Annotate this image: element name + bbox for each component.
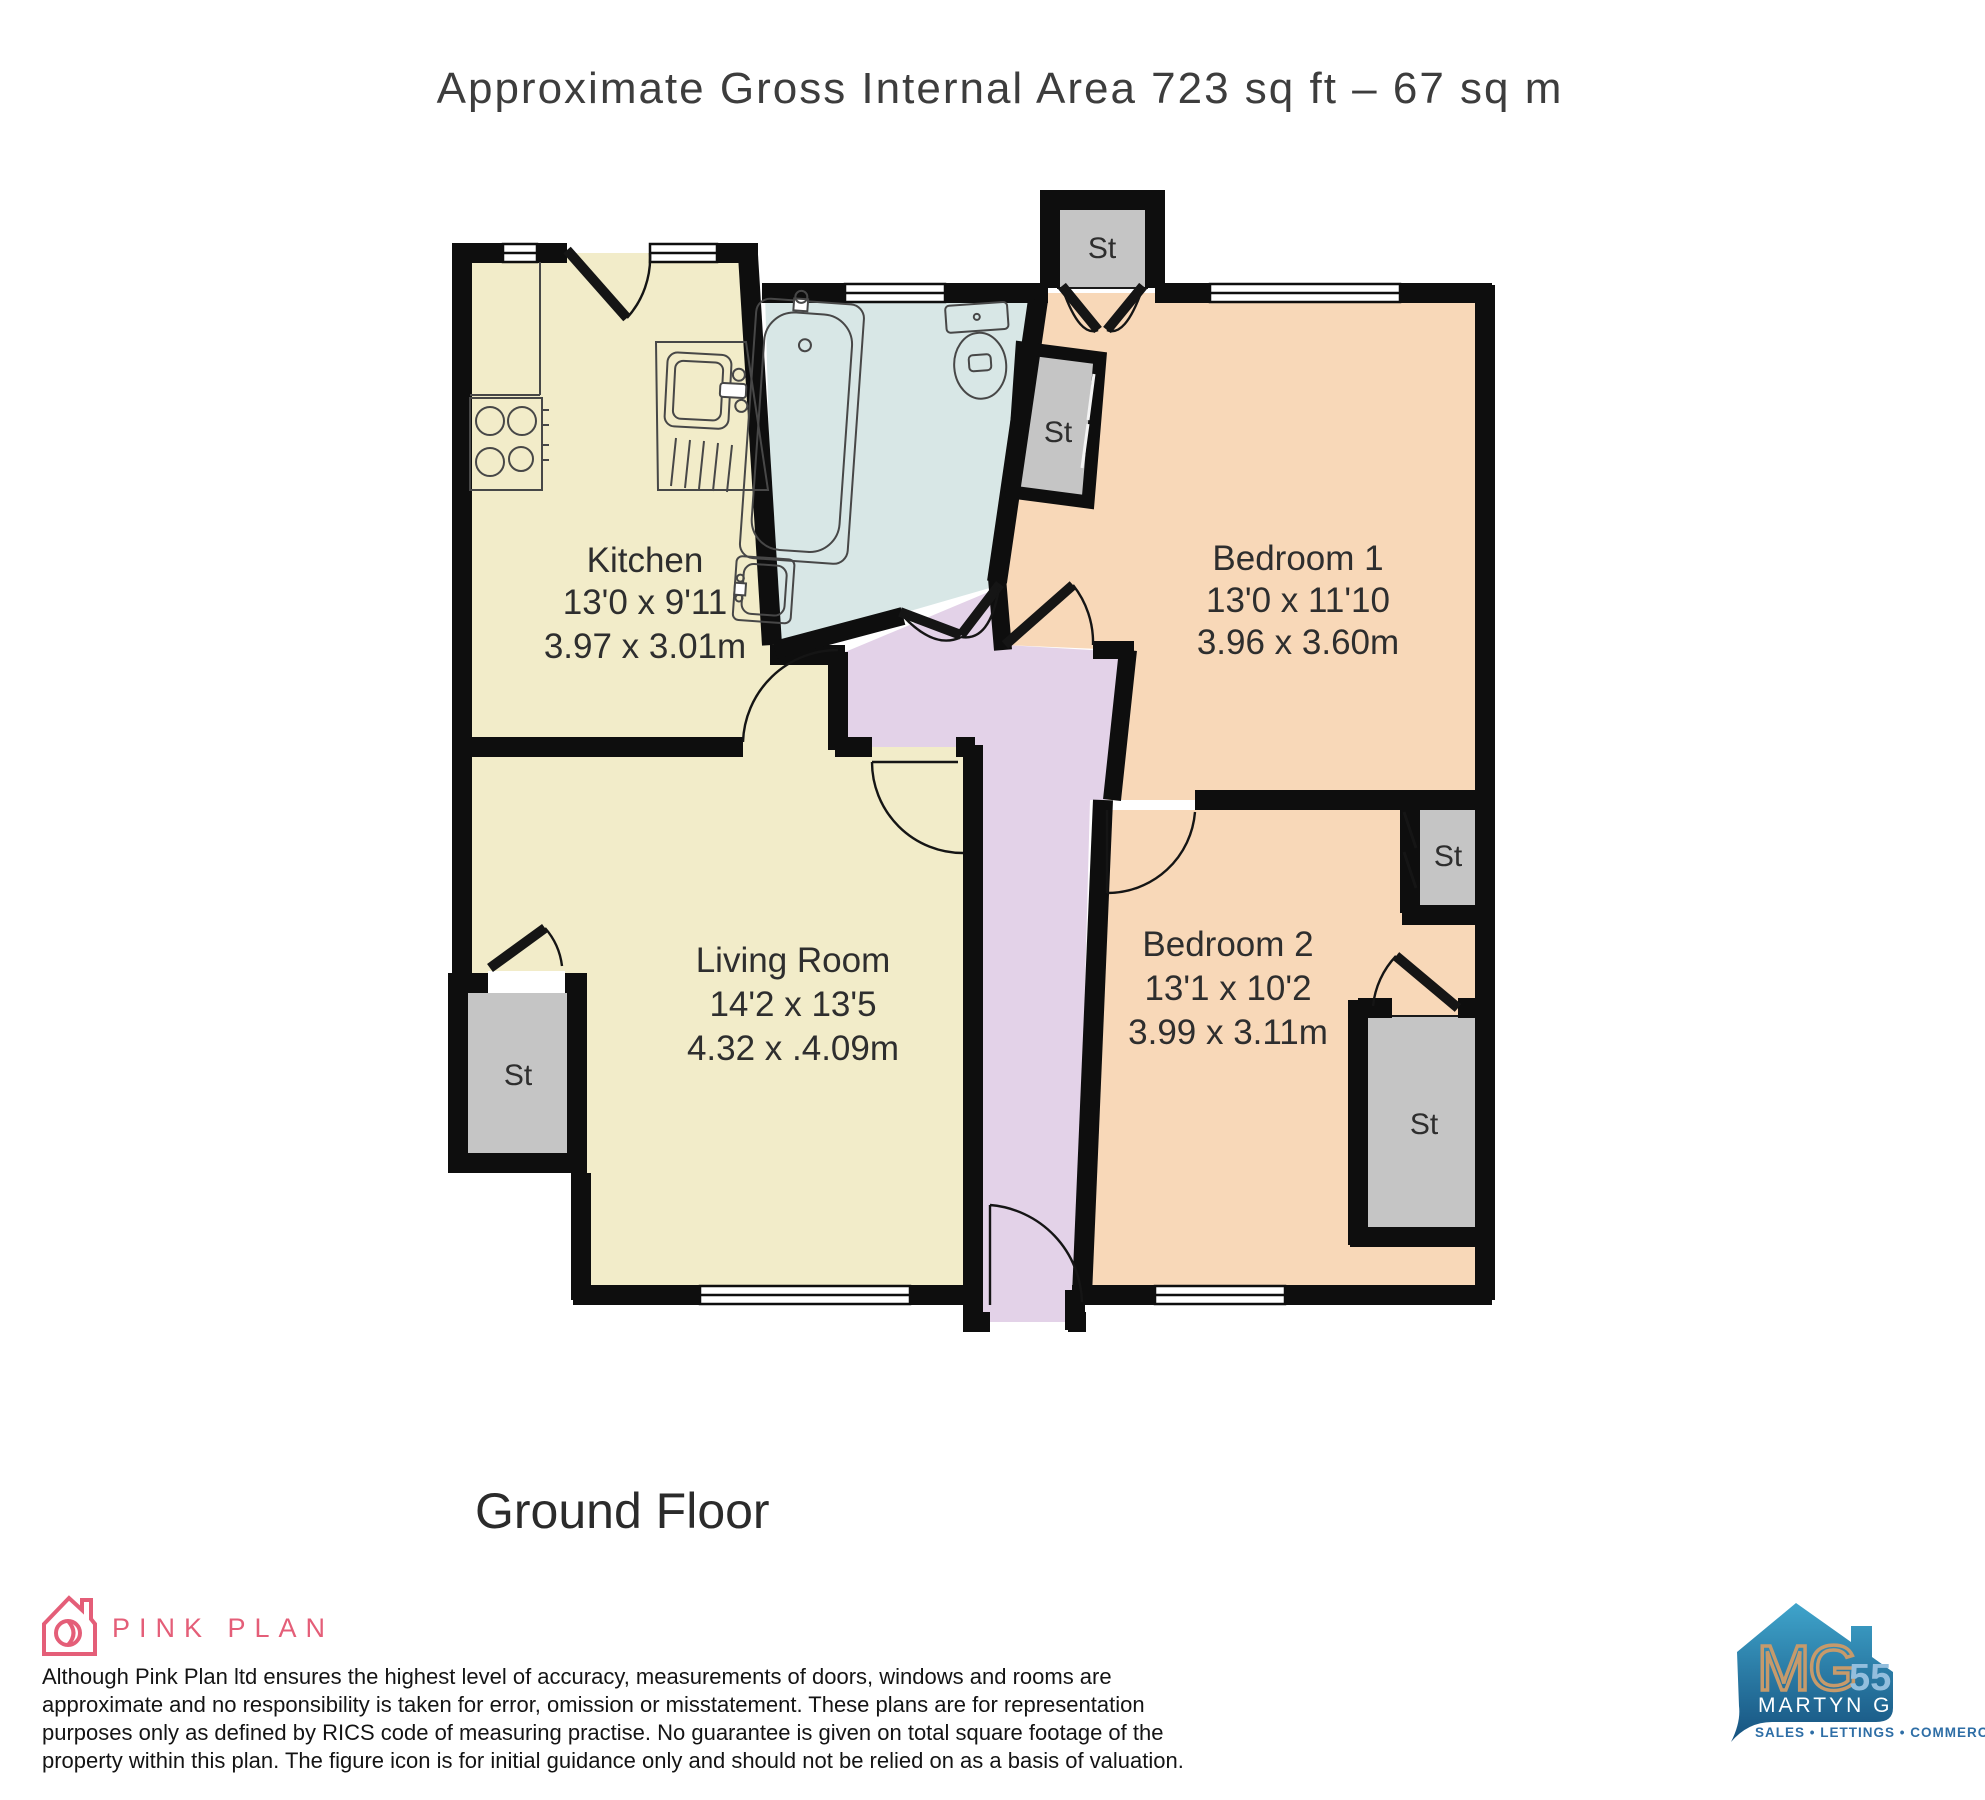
kitchen-name: Kitchen xyxy=(587,541,704,580)
bedroom1-name: Bedroom 1 xyxy=(1212,539,1383,578)
kitchen-imperial: 13'0 x 9'11 xyxy=(563,583,728,622)
label-bedroom1: Bedroom 1 13'0 x 11'10 3.96 x 3.60m xyxy=(1197,539,1399,662)
living-metric: 4.32 x .4.09m xyxy=(687,1029,899,1068)
bedroom1-imperial: 13'0 x 11'10 xyxy=(1206,581,1390,620)
label-living-room: Living Room 14'2 x 13'5 4.32 x .4.09m xyxy=(687,941,899,1068)
st-bath-label: St xyxy=(1044,416,1073,449)
window-bedroom1 xyxy=(1210,284,1400,302)
mg-agent-name: MARTYN GERRARD xyxy=(1758,1694,1985,1717)
window-living xyxy=(700,1286,910,1304)
living-imperial: 14'2 x 13'5 xyxy=(709,985,876,1024)
window-bathroom xyxy=(845,284,945,302)
bedroom2-imperial: 13'1 x 10'2 xyxy=(1144,969,1311,1008)
floorplan-canvas: Approximate Gross Internal Area 723 sq f… xyxy=(0,0,1985,1800)
floorplan-page: Approximate Gross Internal Area 723 sq f… xyxy=(0,0,1985,1800)
st-living-label: St xyxy=(504,1059,533,1092)
kitchen-metric: 3.97 x 3.01m xyxy=(544,627,746,666)
floor-title: Ground Floor xyxy=(475,1483,770,1539)
st-bed2-lower-label: St xyxy=(1410,1108,1439,1141)
mg-logo: MG 55 MARTYN GERRARD SALES • LETTINGS • … xyxy=(1731,1603,1985,1742)
window-kitchen-1 xyxy=(503,244,537,262)
disclaimer: Although Pink Plan ltd ensures the highe… xyxy=(42,1664,1184,1773)
disclaimer-line-4: property within this plan. The figure ic… xyxy=(42,1748,1184,1773)
page-title: Approximate Gross Internal Area 723 sq f… xyxy=(437,64,1564,113)
disclaimer-line-1: Although Pink Plan ltd ensures the highe… xyxy=(42,1664,1112,1689)
disclaimer-line-3: purposes only as defined by RICS code of… xyxy=(42,1720,1163,1745)
living-name: Living Room xyxy=(696,941,891,980)
pink-house-icon xyxy=(44,1598,95,1654)
window-kitchen-2 xyxy=(650,244,717,262)
st-top-label: St xyxy=(1088,232,1117,265)
pink-plan-brand: PINK PLAN xyxy=(112,1613,334,1643)
bedroom1-metric: 3.96 x 3.60m xyxy=(1197,623,1399,662)
disclaimer-line-2: approximate and no responsibility is tak… xyxy=(42,1692,1145,1717)
st-bed2-upper-label: St xyxy=(1434,840,1463,873)
bedroom2-metric: 3.99 x 3.11m xyxy=(1128,1013,1328,1052)
pink-plan-logo: PINK PLAN xyxy=(44,1598,334,1654)
label-bedroom2: Bedroom 2 13'1 x 10'2 3.99 x 3.11m xyxy=(1128,925,1328,1052)
mg-tagline: SALES • LETTINGS • COMMERCIAL xyxy=(1755,1725,1985,1740)
mg-number: 55 xyxy=(1849,1657,1891,1699)
door-gap-living-storage xyxy=(488,971,565,993)
window-bedroom2 xyxy=(1155,1286,1285,1304)
bedroom2-name: Bedroom 2 xyxy=(1142,925,1313,964)
